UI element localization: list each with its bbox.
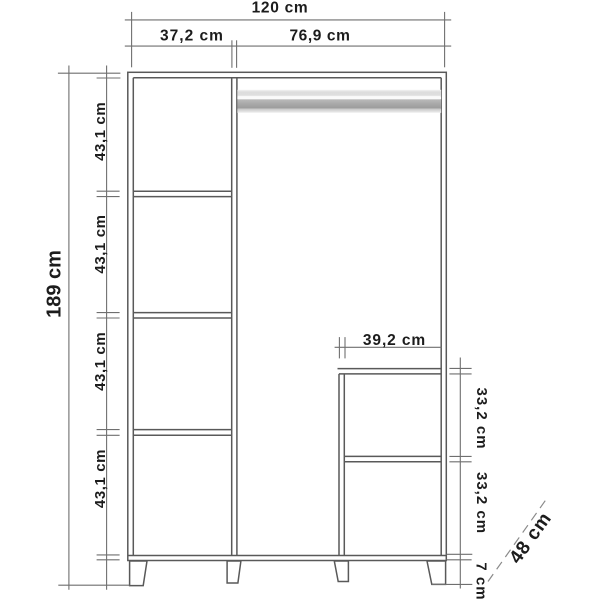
svg-text:76,9 cm: 76,9 cm bbox=[289, 28, 350, 45]
svg-text:43,1 cm: 43,1 cm bbox=[92, 214, 109, 273]
svg-text:33,2 cm: 33,2 cm bbox=[473, 387, 490, 449]
svg-text:33,2 cm: 33,2 cm bbox=[473, 472, 490, 534]
svg-text:120 cm: 120 cm bbox=[252, 0, 309, 16]
svg-text:39,2 cm: 39,2 cm bbox=[363, 332, 426, 349]
svg-text:43,1 cm: 43,1 cm bbox=[92, 102, 109, 161]
svg-text:43,1 cm: 43,1 cm bbox=[92, 332, 109, 391]
svg-text:37,2 cm: 37,2 cm bbox=[160, 28, 224, 45]
svg-text:7 cm: 7 cm bbox=[473, 562, 490, 600]
svg-text:189 cm: 189 cm bbox=[44, 250, 66, 318]
svg-text:43,1 cm: 43,1 cm bbox=[92, 449, 109, 508]
